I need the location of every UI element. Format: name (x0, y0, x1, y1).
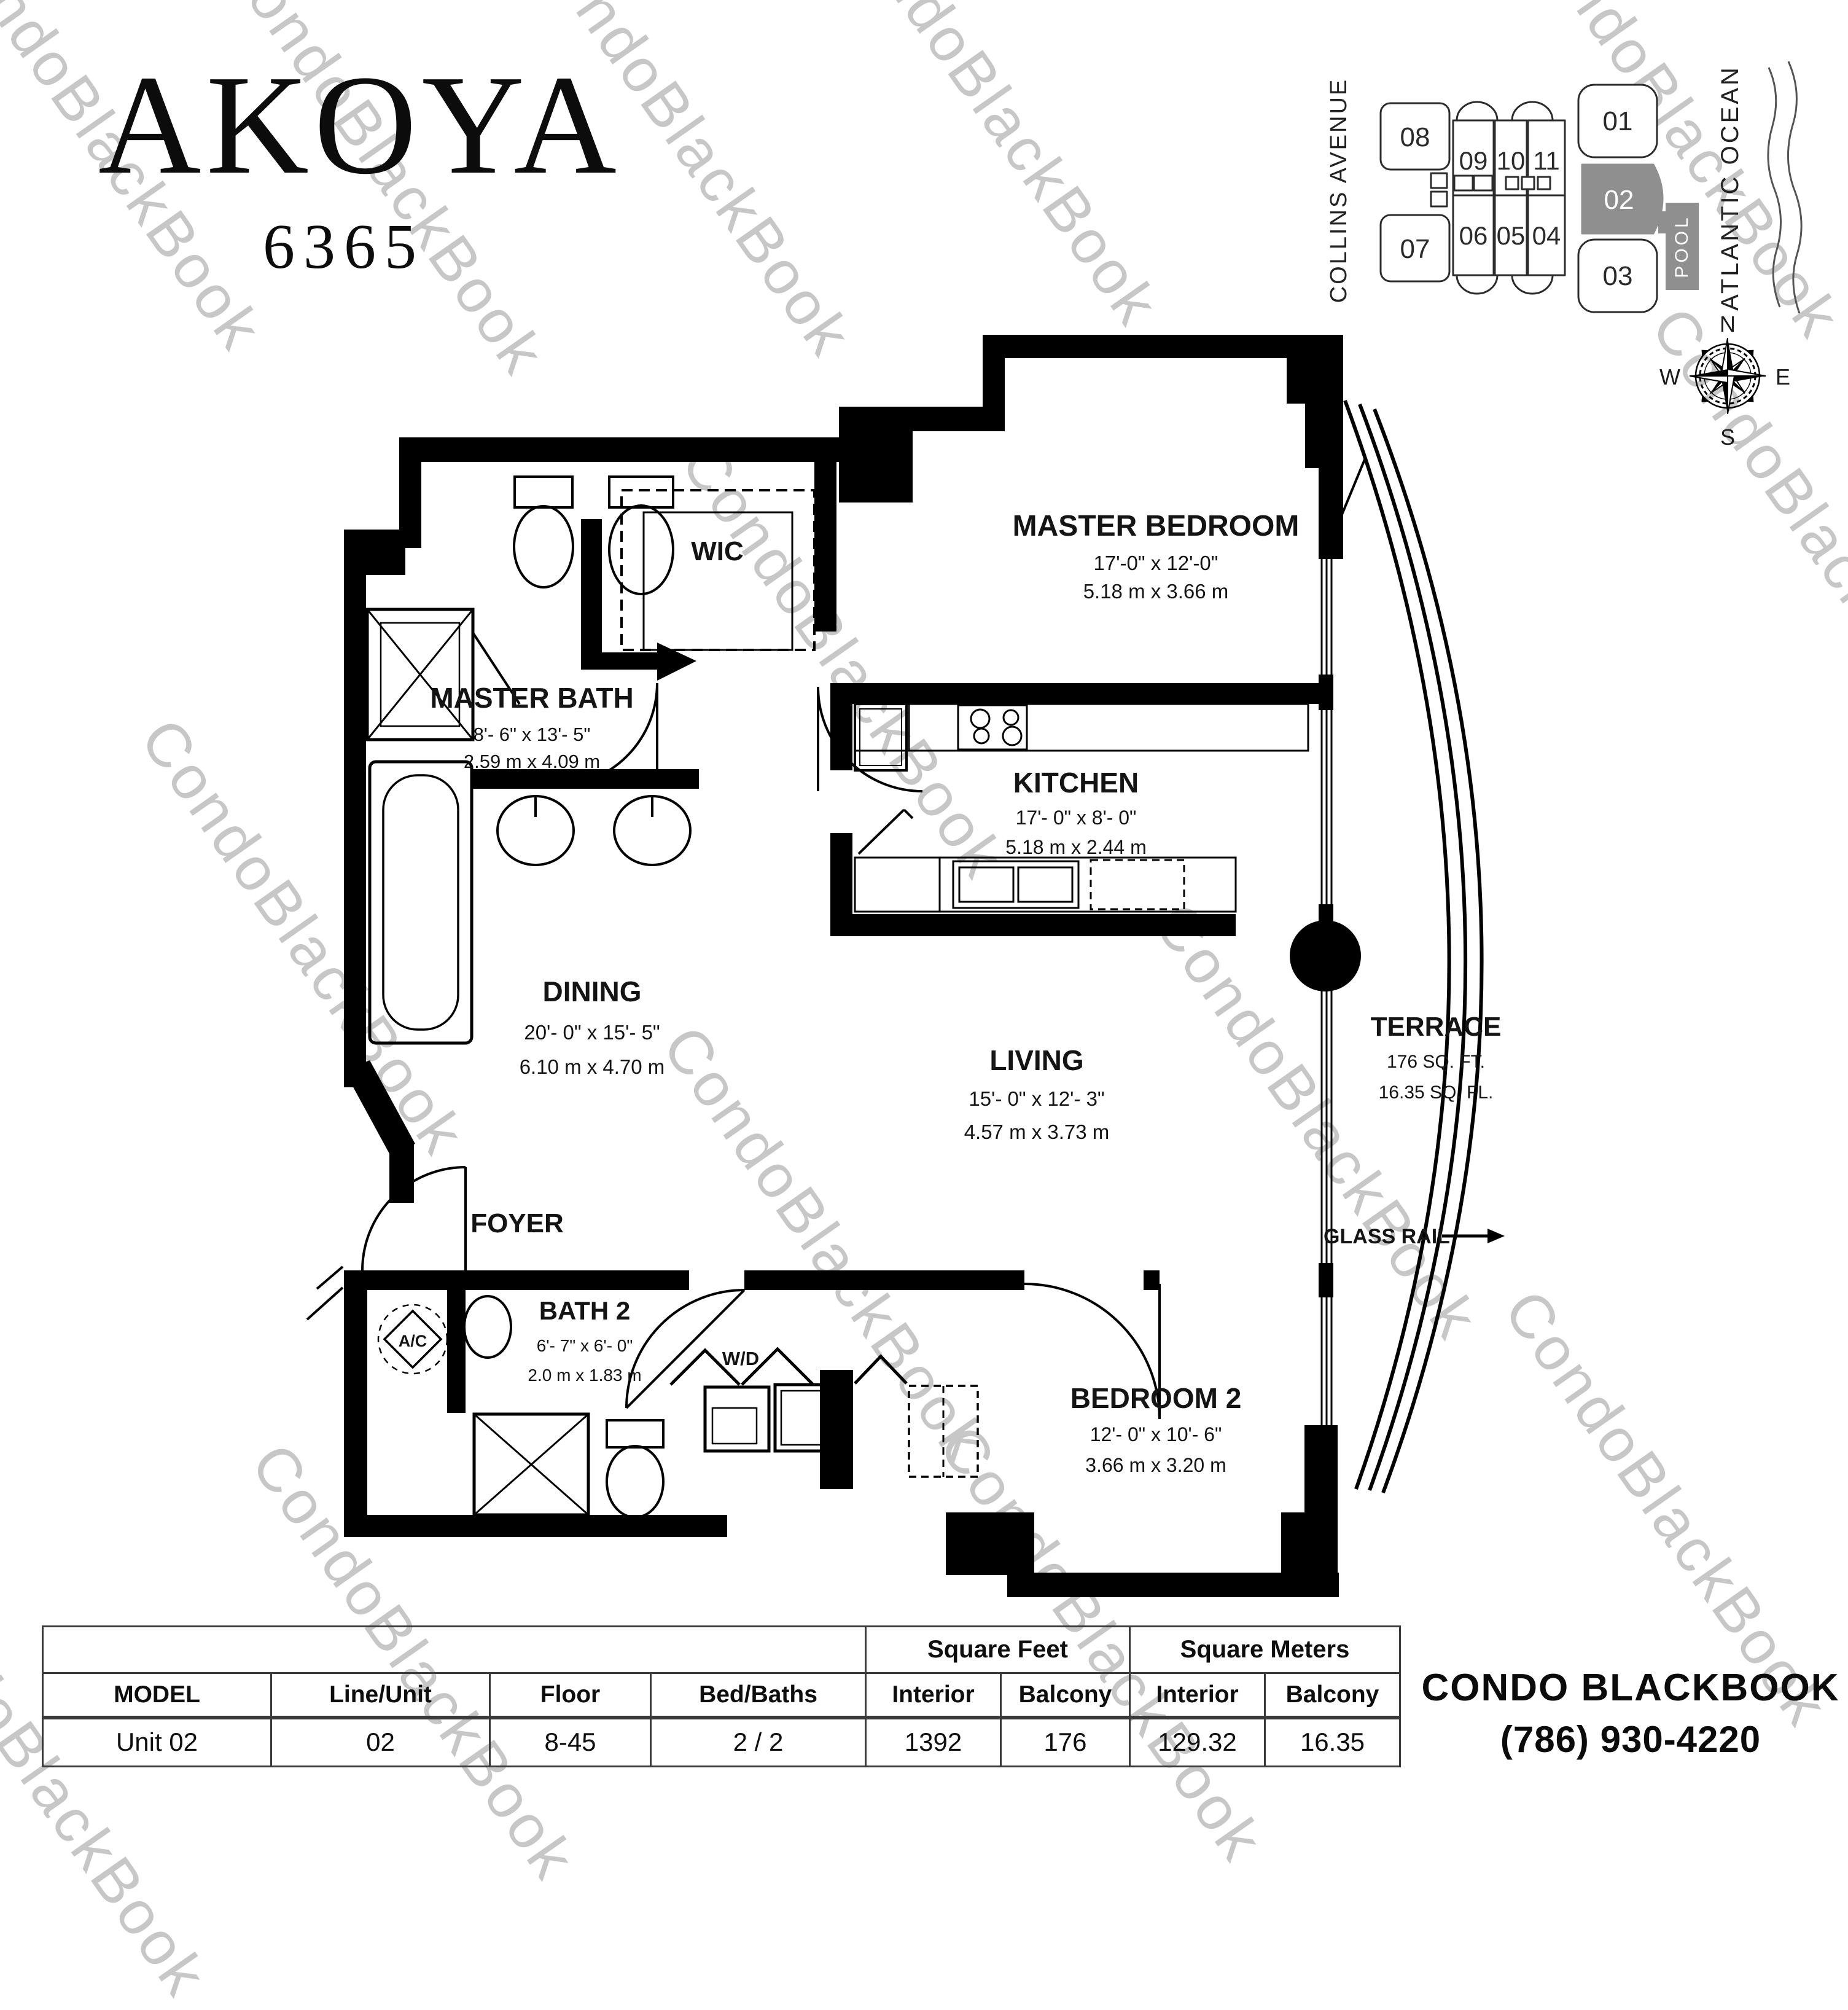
svg-text:6'- 7" x 6'- 0": 6'- 7" x 6'- 0" (537, 1336, 633, 1355)
building-name: AKOYA (98, 54, 622, 197)
keyplan-label-11: 11 (1533, 146, 1560, 175)
closet-bedroom2 (909, 1386, 978, 1477)
table-header-row: MODEL Line/Unit Floor Bed/Baths Interior… (43, 1673, 1400, 1718)
label-ac: A/C (399, 1332, 427, 1350)
svg-text:17'-0" x 12'-0": 17'-0" x 12'-0" (1094, 552, 1218, 574)
compass-n: N (1720, 311, 1736, 337)
svg-text:176 SQ. FT.: 176 SQ. FT. (1387, 1052, 1485, 1072)
label-dining: DINING (543, 976, 642, 1007)
fixtures (367, 477, 1308, 1517)
cell-balcony-sm: 16.35 (1265, 1718, 1400, 1767)
svg-text:8'- 6" x 13'- 5": 8'- 6" x 13'- 5" (474, 724, 591, 745)
group-header-square-meters: Square Meters (1130, 1627, 1400, 1673)
label-kitchen: KITCHEN (1013, 767, 1139, 799)
keyplan-pool-label: POOL (1672, 214, 1692, 278)
label-living: LIVING (989, 1044, 1083, 1076)
cell-bed-baths: 2 / 2 (651, 1718, 866, 1767)
keyplan-label-01: 01 (1603, 106, 1633, 136)
col-balcony-sm: Balcony (1265, 1673, 1400, 1718)
sink-bath2 (464, 1296, 511, 1358)
floorplan-sheet: CondoBlackBook CondoBlackBook CondoBlack… (0, 0, 1848, 1846)
keyplan-label-06: 06 (1459, 221, 1488, 250)
svg-text:15'- 0" x 12'- 3": 15'- 0" x 12'- 3" (969, 1087, 1104, 1110)
compass-s: S (1720, 424, 1735, 450)
svg-text:4.57 m x 3.73 m: 4.57 m x 3.73 m (964, 1120, 1110, 1143)
label-foyer: FOYER (470, 1208, 564, 1238)
shower-master (367, 609, 520, 740)
svg-text:2.0 m x 1.83 m: 2.0 m x 1.83 m (528, 1366, 641, 1385)
toilet-bath2 (607, 1420, 663, 1517)
keyplan-ocean-label: ATLANTIC OCEAN (1717, 65, 1744, 311)
kitchen-counter-upper (855, 704, 1308, 770)
svg-text:16.35 SQ. FL.: 16.35 SQ. FL. (1379, 1082, 1494, 1103)
keyplan: COLLINS AVENUE ATLANTIC OCEAN (1326, 61, 1801, 313)
svg-text:20'- 0" x 15'- 5": 20'- 0" x 15'- 5" (524, 1021, 660, 1044)
label-bath2: BATH 2 (539, 1296, 631, 1325)
toilet-master (514, 477, 573, 587)
col-model: MODEL (43, 1673, 271, 1718)
keyplan-units (1381, 85, 1699, 312)
svg-text:5.18 m x 2.44 m: 5.18 m x 2.44 m (1005, 836, 1146, 858)
keyplan-street-label: COLLINS AVENUE (1326, 78, 1352, 303)
svg-text:2.59 m x 4.09 m: 2.59 m x 4.09 m (464, 751, 600, 772)
building-number: 6365 (263, 210, 425, 283)
svg-text:6.10 m x 4.70 m: 6.10 m x 4.70 m (520, 1055, 665, 1078)
compass-w: W (1659, 364, 1680, 389)
label-terrace: TERRACE (1371, 1012, 1502, 1042)
keyplan-label-07: 07 (1400, 234, 1430, 264)
footer-brand: CONDO BLACKBOOK (786) 930-4220 (1419, 1666, 1842, 1761)
svg-text:3.66 m x 3.20 m: 3.66 m x 3.20 m (1085, 1454, 1226, 1476)
keyplan-label-09: 09 (1459, 146, 1488, 175)
keyplan-label-08: 08 (1400, 122, 1430, 152)
structural-column (1290, 920, 1361, 991)
group-header-square-feet: Square Feet (866, 1627, 1130, 1673)
compass-e: E (1776, 364, 1790, 389)
svg-text:5.18 m x 3.66 m: 5.18 m x 3.66 m (1083, 580, 1229, 603)
brand-name: CONDO BLACKBOOK (1419, 1666, 1842, 1710)
keyplan-label-04: 04 (1532, 221, 1561, 250)
label-bedroom2: BEDROOM 2 (1070, 1382, 1242, 1414)
col-interior-sm: Interior (1130, 1673, 1265, 1718)
col-bed-baths: Bed/Baths (651, 1673, 866, 1718)
shower-bath2 (474, 1414, 588, 1515)
compass-cardinal-points (1690, 338, 1766, 414)
cell-balcony-sf: 176 (1001, 1718, 1130, 1767)
shoreline-waves (1768, 61, 1801, 313)
label-glass-rail: GLASS RAIL (1324, 1225, 1450, 1248)
wic-closet (622, 490, 814, 650)
keyplan-label-05: 05 (1497, 221, 1526, 250)
col-interior-sf: Interior (866, 1673, 1001, 1718)
keyplan-label-10: 10 (1497, 146, 1526, 175)
glass-rail-arrow (1487, 1229, 1505, 1243)
cell-interior-sm: 129.32 (1130, 1718, 1265, 1767)
table-group-header-row: Square Feet Square Meters (43, 1627, 1400, 1673)
cell-interior-sf: 1392 (866, 1718, 1001, 1767)
spec-table: Square Feet Square Meters MODEL Line/Uni… (42, 1625, 1401, 1767)
glass-rail-curve (1345, 401, 1482, 1493)
label-master-bath: MASTER BATH (430, 682, 633, 714)
svg-text:17'- 0" x 8'- 0": 17'- 0" x 8'- 0" (1016, 807, 1137, 829)
washer-dryer (671, 1349, 906, 1451)
keyplan-label-02: 02 (1604, 185, 1634, 215)
cell-floor: 8-45 (490, 1718, 651, 1767)
svg-text:12'- 0" x 10'- 6": 12'- 0" x 10'- 6" (1090, 1423, 1222, 1445)
label-master-bedroom: MASTER BEDROOM (1013, 510, 1300, 542)
room-labels: MASTER BEDROOM 17'-0" x 12'-0" 5.18 m x … (399, 510, 1505, 1476)
col-floor: Floor (490, 1673, 651, 1718)
label-wic: WIC (691, 536, 744, 566)
col-line-unit: Line/Unit (271, 1673, 490, 1718)
compass-rose: N E S W (1659, 311, 1790, 450)
col-balcony-sf: Balcony (1001, 1673, 1130, 1718)
cell-model: Unit 02 (43, 1718, 271, 1767)
brand-phone: (786) 930-4220 (1419, 1718, 1842, 1761)
label-wd: W/D (722, 1348, 759, 1369)
table-row: Unit 02 02 8-45 2 / 2 1392 176 129.32 16… (43, 1718, 1400, 1767)
bidet-master (609, 477, 673, 594)
vanity-sinks (497, 796, 690, 865)
bathtub (370, 762, 472, 1043)
keyplan-label-03: 03 (1603, 261, 1633, 291)
cell-line-unit: 02 (271, 1718, 490, 1767)
